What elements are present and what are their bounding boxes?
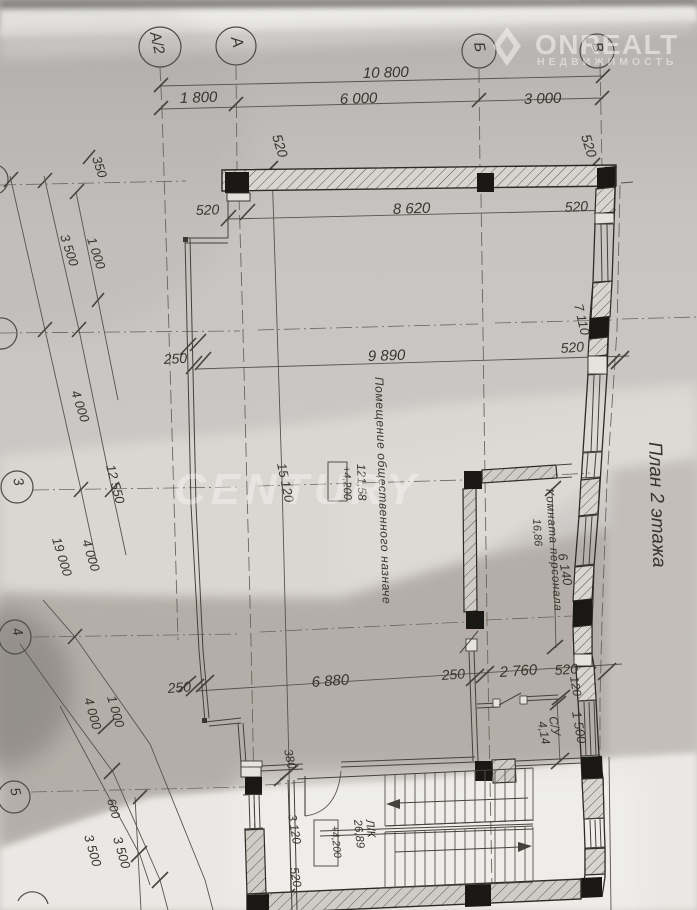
svg-text:9 890: 9 890 [368,347,407,365]
svg-text:8 620: 8 620 [393,200,432,218]
svg-text:1 800: 1 800 [180,89,219,107]
svg-text:НЕДВИЖИМОСТЬ: НЕДВИЖИМОСТЬ [537,56,677,68]
svg-text:250: 250 [440,665,466,683]
svg-text:CENTURY: CENTURY [174,465,421,514]
svg-text:520: 520 [564,198,588,215]
svg-text:6 880: 6 880 [311,671,350,691]
svg-text:6 000: 6 000 [340,90,379,108]
svg-text:16,86: 16,86 [530,518,544,547]
svg-text:3 000: 3 000 [524,90,563,108]
svg-text:520: 520 [560,338,585,356]
svg-text:250: 250 [166,678,192,696]
svg-text:520: 520 [196,201,220,218]
svg-text:План 2 этажа: План 2 этажа [644,441,669,567]
svg-text:250: 250 [162,350,187,367]
svg-text:10 800: 10 800 [363,64,410,82]
svg-text:2 760: 2 760 [498,661,538,681]
